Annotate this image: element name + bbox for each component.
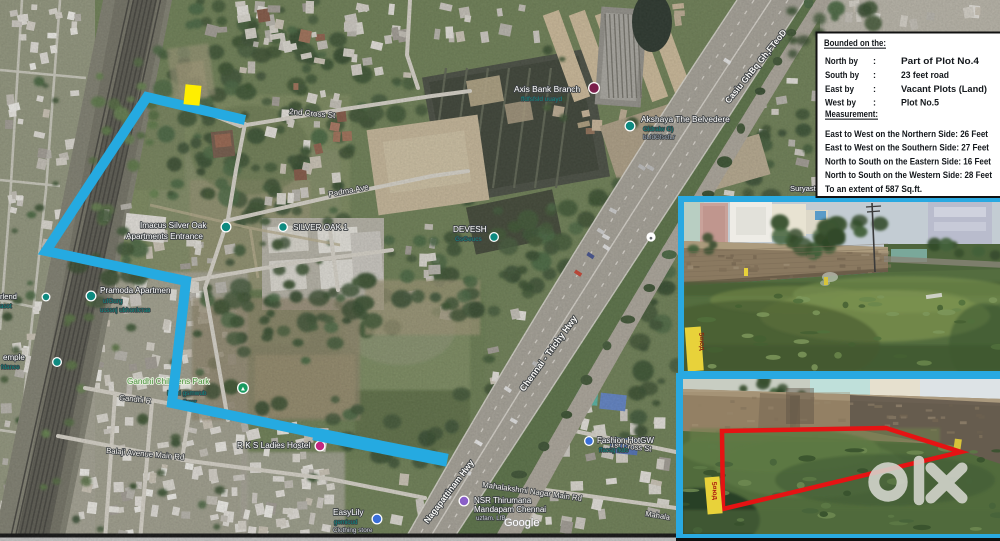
- svg-text::: :: [873, 56, 876, 66]
- svg-text:East by: East by: [825, 84, 854, 94]
- svg-text:23 feet road: 23 feet road: [901, 70, 949, 80]
- svg-text:●: ●: [649, 235, 653, 242]
- svg-text:5¤юд: 5¤юд: [697, 332, 705, 351]
- svg-text:emple: emple: [3, 353, 25, 362]
- svg-text:East to West on the Northern S: East to West on the Northern Side: 26 Fe…: [825, 129, 988, 139]
- svg-text:gemicud: gemicud: [334, 519, 358, 526]
- svg-text:North by: North by: [825, 56, 858, 66]
- svg-text:asot: asot: [0, 303, 12, 310]
- svg-text:North to South on the Eastern: North to South on the Eastern Side: 16 F…: [825, 157, 991, 167]
- svg-text:ucssnj ubhonlстав: ucssnj ubhonlстав: [100, 307, 151, 314]
- svg-text:rlend: rlend: [0, 292, 17, 301]
- svg-text:Measurement:: Measurement:: [825, 109, 878, 119]
- svg-text::: :: [873, 70, 876, 80]
- svg-text:West by: West by: [825, 98, 856, 108]
- svg-text:▲: ▲: [240, 385, 246, 392]
- svg-text:SILVER OAK 1: SILVER OAK 1: [293, 223, 348, 232]
- svg-text:North to South on the Western: North to South on the Western Side: 28 F…: [825, 170, 992, 180]
- svg-text:EasyLily: EasyLily: [333, 508, 364, 517]
- svg-text:ufGurg: ufGurg: [103, 298, 123, 305]
- svg-text:DEVESH: DEVESH: [453, 225, 487, 234]
- svg-text:To an extent of 587 Sq.ft.: To an extent of 587 Sq.ft.: [825, 184, 922, 194]
- svg-text::: :: [873, 84, 876, 94]
- svg-text:East to West on the Southern S: East to West on the Southern Side: 27 Fe…: [825, 143, 989, 153]
- svg-text:NSR Thirumana: NSR Thirumana: [474, 496, 532, 505]
- svg-text:bLfdGfscfLr: bLfdGfscfLr: [643, 134, 675, 141]
- svg-text::: :: [873, 98, 876, 108]
- svg-text:GsGeucs: GsGeucs: [455, 236, 482, 243]
- svg-text:Akshaya The Belvedere: Akshaya The Belvedere: [641, 114, 730, 124]
- svg-text:Bounded on the:: Bounded on the:: [824, 38, 886, 48]
- svg-text:Apartments Entrance: Apartments Entrance: [126, 232, 203, 241]
- svg-text:Imacus Silver Oak: Imacus Silver Oak: [140, 221, 207, 230]
- svg-text:ffdfsfsld uuayd: ffdfsfsld uuayd: [521, 96, 563, 103]
- svg-text:fdance: fdance: [1, 364, 20, 371]
- svg-text:Plot No.5: Plot No.5: [901, 98, 939, 108]
- svg-text:South by: South by: [825, 70, 859, 80]
- svg-text:Mandapam Chennai: Mandapam Chennai: [474, 505, 546, 514]
- svg-text:Fashion HotGW: Fashion HotGW: [597, 436, 654, 445]
- svg-text:Vacant Plots (Land): Vacant Plots (Land): [901, 84, 987, 94]
- svg-text:R K S Ladies Hostel: R K S Ladies Hostel: [237, 441, 310, 450]
- svg-text:ffacsg fkdc: ffacsg fkdc: [599, 447, 628, 454]
- svg-text:Part of Plot No.4: Part of Plot No.4: [901, 56, 979, 66]
- svg-text:Pramoda Apartmen: Pramoda Apartmen: [100, 286, 171, 295]
- svg-text:uzfam. LfB: uzfam. LfB: [476, 515, 506, 522]
- svg-text:Gldralw G): Gldralw G): [643, 126, 674, 133]
- svg-text:Clothing store: Clothing store: [333, 527, 373, 534]
- svg-text:Gandhi Childrens Park: Gandhi Childrens Park: [127, 377, 210, 386]
- svg-text:Suryast: Suryast: [790, 184, 817, 193]
- svg-text:Axis Bank Branch: Axis Bank Branch: [514, 84, 580, 94]
- svg-text:Google: Google: [504, 517, 539, 529]
